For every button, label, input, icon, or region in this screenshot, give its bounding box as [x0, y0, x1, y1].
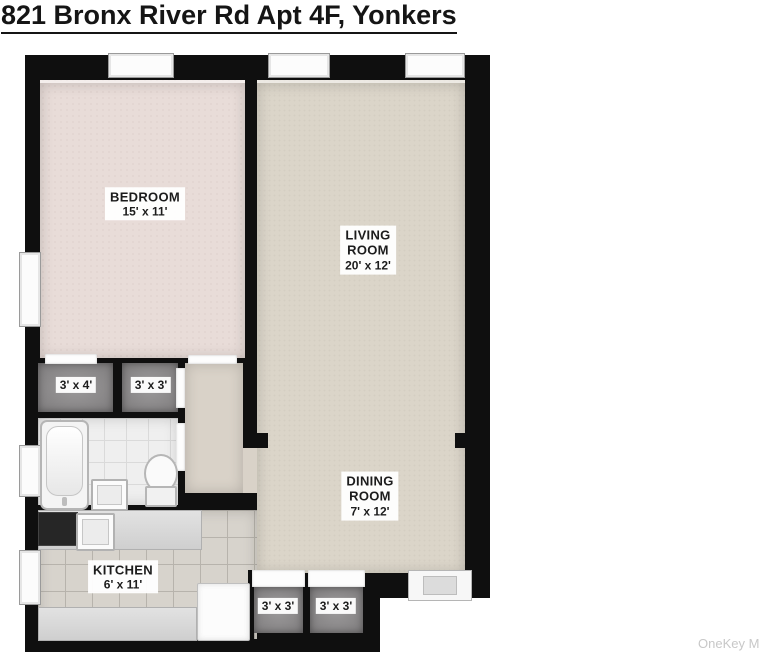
- kitchen-sink: [76, 513, 115, 551]
- closet-bottom-right-door: [308, 570, 365, 587]
- living-room-window-top-right: [405, 53, 465, 78]
- dining-room-name-line1: DINING: [346, 474, 393, 489]
- living-dining-divider-stub-left: [257, 433, 268, 448]
- kitchen-label: KITCHEN 6' x 11': [88, 560, 158, 593]
- living-room-label: LIVING ROOM 20' x 12': [340, 226, 396, 275]
- dining-room-name-line2: ROOM: [346, 489, 393, 504]
- bedroom-door: [188, 355, 237, 364]
- bedroom-label: BEDROOM 15' x 11': [105, 187, 185, 220]
- kitchen-dims: 6' x 11': [93, 578, 153, 592]
- living-room-dims: 20' x 12': [345, 258, 391, 272]
- bathtub: [40, 420, 89, 510]
- watermark: OneKey MLS: [698, 636, 760, 651]
- bedroom-window-top: [108, 53, 174, 78]
- refrigerator: [197, 583, 250, 641]
- closet-bottom-right-label: 3' x 3': [316, 598, 356, 614]
- closet-bottom-left-door: [252, 570, 305, 587]
- kitchen-counter-bottom: [38, 607, 197, 641]
- entry-door: [408, 570, 472, 601]
- floor-plan-page: { "title": "821 Bronx River Rd Apt 4F, Y…: [0, 0, 760, 655]
- closet-top-left-door: [45, 354, 97, 364]
- toilet-tank: [145, 486, 177, 507]
- bathroom-sink-basin: [97, 485, 122, 505]
- entry-door-panel: [423, 576, 457, 595]
- bathroom-sink: [91, 479, 128, 511]
- floor-plan: BEDROOM 15' x 11' LIVING ROOM 20' x 12' …: [25, 55, 490, 652]
- living-room-name-line2: ROOM: [345, 243, 391, 258]
- closet-top-right-label: 3' x 3': [131, 377, 171, 393]
- closet-bottom-left-label: 3' x 3': [258, 598, 298, 614]
- hallway-opening: [243, 448, 257, 493]
- living-room-window-top-left: [268, 53, 330, 78]
- closet-top-left-label: 3' x 4': [56, 377, 96, 393]
- hallway-floor: [185, 363, 243, 493]
- page-title-text: 821 Bronx River Rd Apt 4F, Yonkers: [1, 0, 457, 34]
- living-room-name-line1: LIVING: [345, 228, 391, 243]
- dining-room-dims: 7' x 12': [346, 504, 393, 518]
- living-dining-divider-stub-right: [455, 433, 465, 448]
- bathroom-door: [176, 423, 185, 471]
- kitchen-name: KITCHEN: [93, 562, 153, 577]
- kitchen-sink-basin: [82, 519, 109, 545]
- bedroom-window-left: [19, 252, 41, 327]
- bathtub-basin: [46, 426, 83, 496]
- closet-top-right-door: [176, 368, 185, 408]
- bedroom-dims: 15' x 11': [110, 205, 180, 219]
- kitchen-window-left: [19, 550, 41, 605]
- bedroom-name: BEDROOM: [110, 189, 180, 204]
- dining-room-label: DINING ROOM 7' x 12': [341, 472, 398, 521]
- page-title: 821 Bronx River Rd Apt 4F, Yonkers: [1, 0, 457, 34]
- bathtub-faucet: [62, 497, 67, 506]
- stove: [38, 512, 78, 546]
- bathroom-window-left: [19, 445, 41, 497]
